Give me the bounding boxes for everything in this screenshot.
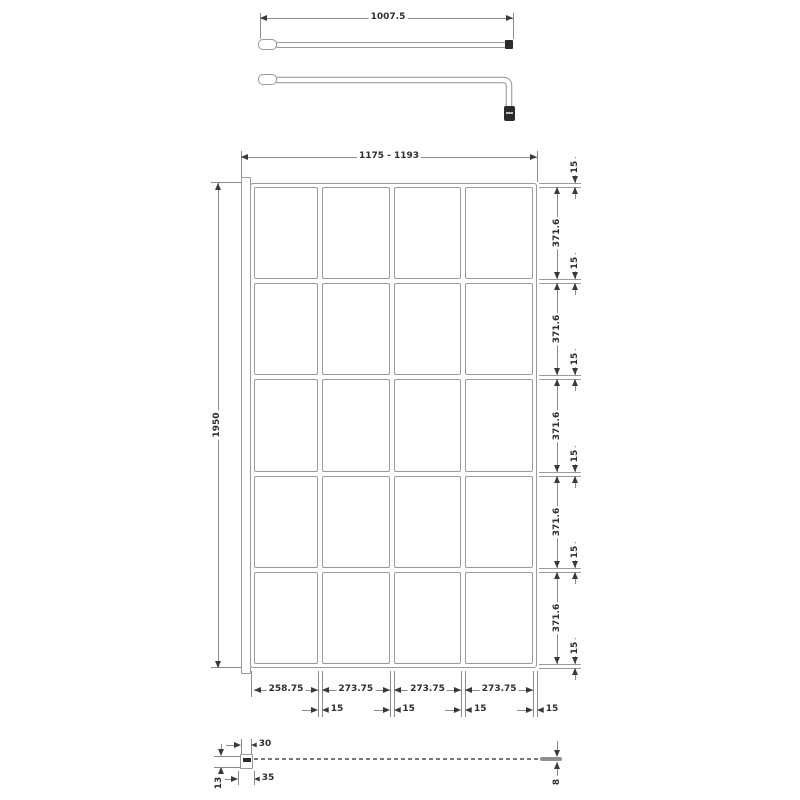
glass-panel (394, 572, 462, 664)
dim-arrow (554, 368, 560, 375)
dim-label-panel-width: 258.75 (267, 685, 306, 695)
dim-label-mullion-thickness: 15 (400, 705, 417, 715)
dim-label-glass-thickness: 8 (553, 777, 563, 787)
dim-arrow (554, 657, 560, 664)
extension-line (537, 151, 538, 182)
extension-line (318, 671, 319, 717)
dim-arrow (526, 707, 533, 713)
glass-panel (322, 379, 390, 471)
dim-label-panel-height: 371.6 (553, 217, 563, 249)
dim-arrow (254, 687, 261, 693)
dim-arrow (311, 707, 318, 713)
dim-label-bar-thickness: 15 (571, 255, 581, 272)
dim-label-support-bar-length: 1007.5 (369, 13, 408, 23)
dim-arrow (572, 561, 578, 568)
glass-panel (465, 572, 533, 664)
dim-arrow (572, 176, 578, 183)
dim-arrow (554, 272, 560, 279)
support-bar-glass-clamp-slot (506, 112, 513, 114)
glass-panel (465, 379, 533, 471)
dim-arrow (231, 776, 238, 782)
dim-label-panel-height: 371.6 (553, 602, 563, 634)
glass-panel (254, 187, 318, 279)
extension-line (238, 771, 239, 785)
extension-line (251, 671, 252, 697)
dim-arrow (554, 572, 560, 579)
dim-arrow (465, 687, 472, 693)
glass-panel (254, 572, 318, 664)
dim-label-panel-width: 273.75 (408, 685, 447, 695)
dim-arrow (554, 379, 560, 386)
dim-arrow (215, 183, 221, 190)
dim-arrow (383, 707, 390, 713)
dim-label-mullion-thickness: 15 (472, 705, 489, 715)
dim-label-bar-thickness: 15 (571, 351, 581, 368)
dim-arrow (572, 572, 578, 579)
support-bar-tube-outline (276, 80, 509, 110)
dim-arrow (241, 154, 248, 160)
glass-panel (465, 283, 533, 375)
dim-arrow (572, 368, 578, 375)
dim-arrow (572, 283, 578, 290)
dim-label-panel-width: 273.75 (480, 685, 519, 695)
dim-arrow (572, 272, 578, 279)
extension-line (539, 279, 581, 280)
dim-label-panel-height: 371.6 (553, 409, 563, 441)
dim-label-bar-thickness: 15 (571, 640, 581, 657)
dim-arrow (554, 465, 560, 472)
dim-arrow (572, 657, 578, 664)
support-bar-end-cap (505, 40, 513, 49)
dim-arrow (572, 379, 578, 386)
dim-label-profile-inner-width: 30 (257, 740, 274, 750)
dim-arrow (454, 707, 461, 713)
support-bar-tube-fill (276, 80, 509, 110)
glass-panel (394, 476, 462, 568)
dim-arrow (572, 465, 578, 472)
glass-plan-line (254, 758, 538, 760)
dim-label-profile-outer-width: 35 (260, 774, 277, 784)
dim-arrow (572, 187, 578, 194)
glass-panel (465, 476, 533, 568)
dim-arrow (311, 687, 318, 693)
dim-arrow (572, 476, 578, 483)
dim-arrow (554, 283, 560, 290)
glass-panel (322, 572, 390, 664)
dim-arrow (530, 154, 537, 160)
dim-label-panel-height: 371.6 (553, 313, 563, 345)
dim-label-mullion-thickness: 15 (329, 705, 346, 715)
extension-line (539, 568, 581, 569)
glass-plan-end-segment (540, 757, 562, 761)
glass-panel (394, 379, 462, 471)
dim-arrow (572, 668, 578, 675)
support-bar-wall-bracket (258, 74, 277, 85)
extension-line (539, 375, 581, 376)
dim-label-panel-height: 371.6 (553, 505, 563, 537)
dim-label-overall-height: 1950 (213, 410, 223, 439)
glass-end-in-channel (243, 758, 251, 762)
dim-arrow (260, 15, 267, 21)
glass-panel (394, 283, 462, 375)
extension-line (539, 183, 581, 184)
extension-line (539, 472, 581, 473)
extension-line (461, 671, 462, 717)
extension-line (214, 756, 240, 757)
dim-label-bar-thickness: 15 (571, 159, 581, 176)
extension-line (539, 664, 581, 665)
dim-arrow (554, 750, 560, 757)
glass-panel (254, 476, 318, 568)
dim-arrow (218, 767, 224, 774)
extension-line (390, 671, 391, 717)
dim-arrow (322, 687, 329, 693)
dim-label-mullion-thickness: 15 (544, 705, 561, 715)
dim-arrow (554, 476, 560, 483)
dim-arrow (554, 561, 560, 568)
dim-arrow (454, 687, 461, 693)
glass-panel (322, 476, 390, 568)
dim-arrow (215, 661, 221, 668)
glass-panel (322, 187, 390, 279)
dim-label-bar-thickness: 15 (571, 544, 581, 561)
dim-arrow (526, 687, 533, 693)
glass-panel (254, 379, 318, 471)
dim-arrow (554, 187, 560, 194)
support-bar-straight (276, 42, 507, 48)
dim-label-profile-depth: 13 (215, 775, 225, 792)
dim-arrow (234, 742, 241, 748)
support-bar-wall-bracket (258, 39, 277, 50)
glass-panel (465, 187, 533, 279)
glass-panel (254, 283, 318, 375)
glass-panel (394, 187, 462, 279)
dim-arrow (218, 749, 224, 756)
dim-arrow (506, 15, 513, 21)
dim-arrow (383, 687, 390, 693)
dim-label-bar-thickness: 15 (571, 447, 581, 464)
glass-panel (322, 283, 390, 375)
shower-screen-technical-drawing: 1007.5 1175 - 1193 1950 30 13 35 8 15151… (0, 0, 800, 800)
extension-line (533, 671, 534, 717)
dim-arrow (554, 762, 560, 769)
extension-line (513, 13, 514, 39)
dim-label-overall-width: 1175 - 1193 (357, 152, 421, 162)
dim-arrow (394, 687, 401, 693)
dim-label-panel-width: 273.75 (336, 685, 375, 695)
support-bar-angled-view (256, 70, 526, 130)
